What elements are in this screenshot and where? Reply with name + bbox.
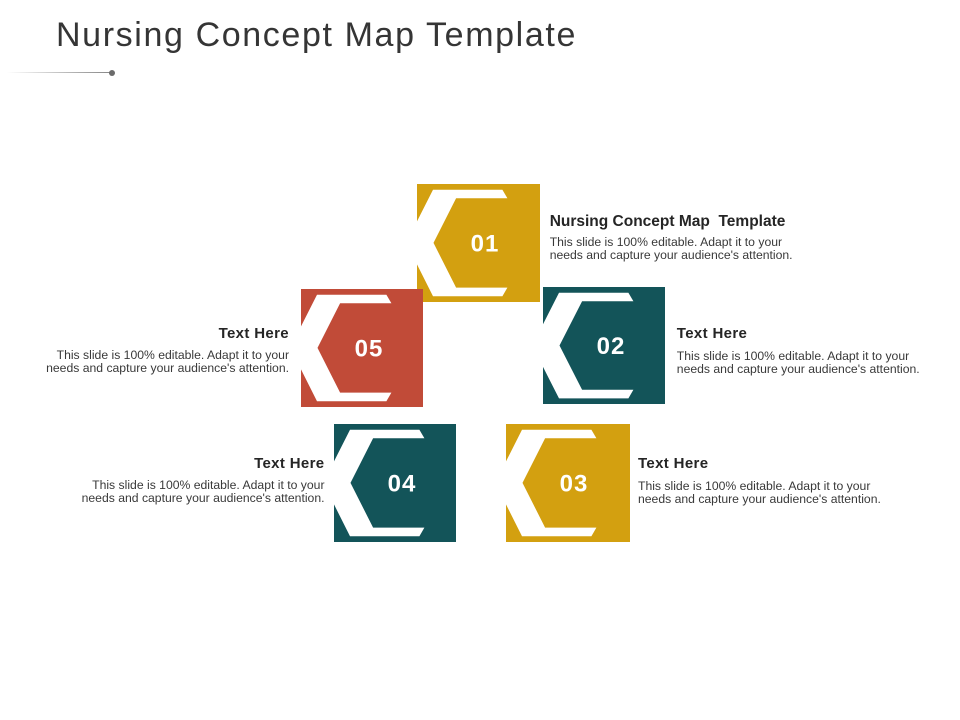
svg-text:05: 05 <box>354 335 383 362</box>
svg-text:02: 02 <box>597 333 626 360</box>
svg-text:01: 01 <box>470 230 499 257</box>
svg-text:04: 04 <box>387 470 416 497</box>
svg-text:03: 03 <box>559 470 588 497</box>
